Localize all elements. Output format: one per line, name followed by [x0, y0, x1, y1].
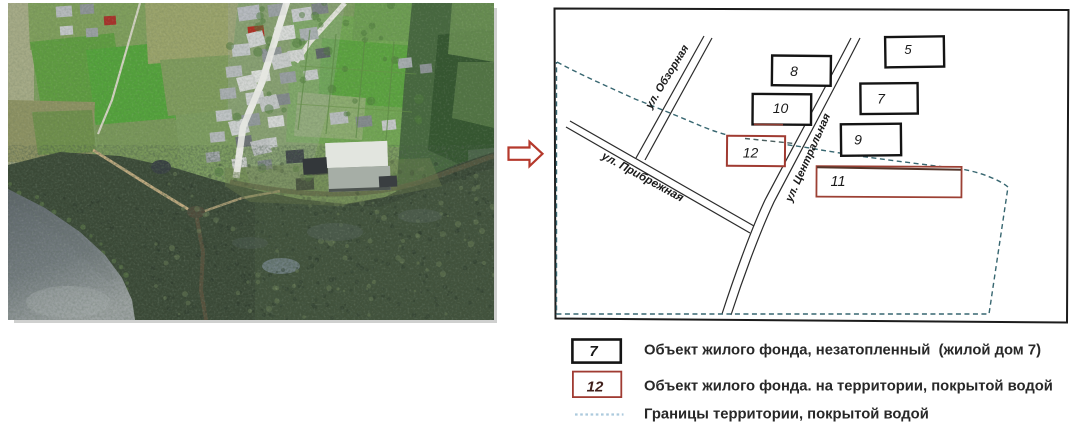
- svg-text:9: 9: [854, 132, 862, 148]
- svg-text:7: 7: [877, 91, 886, 107]
- svg-text:10: 10: [773, 100, 789, 116]
- svg-text:12: 12: [743, 145, 759, 161]
- svg-text:12: 12: [587, 379, 604, 396]
- svg-text:5: 5: [904, 42, 912, 57]
- svg-text:11: 11: [830, 174, 845, 190]
- svg-text:8: 8: [790, 63, 798, 79]
- svg-text:Объект жилого фонда. на террит: Объект жилого фонда. на территории, покр…: [644, 379, 1053, 395]
- svg-text:7: 7: [589, 343, 598, 360]
- svg-text:Объект жилого фонда, незатопле: Объект жилого фонда, незатопленный (жило…: [644, 343, 1041, 359]
- svg-text:Границы территории, покрытой в: Границы территории, покрытой водой: [644, 407, 929, 423]
